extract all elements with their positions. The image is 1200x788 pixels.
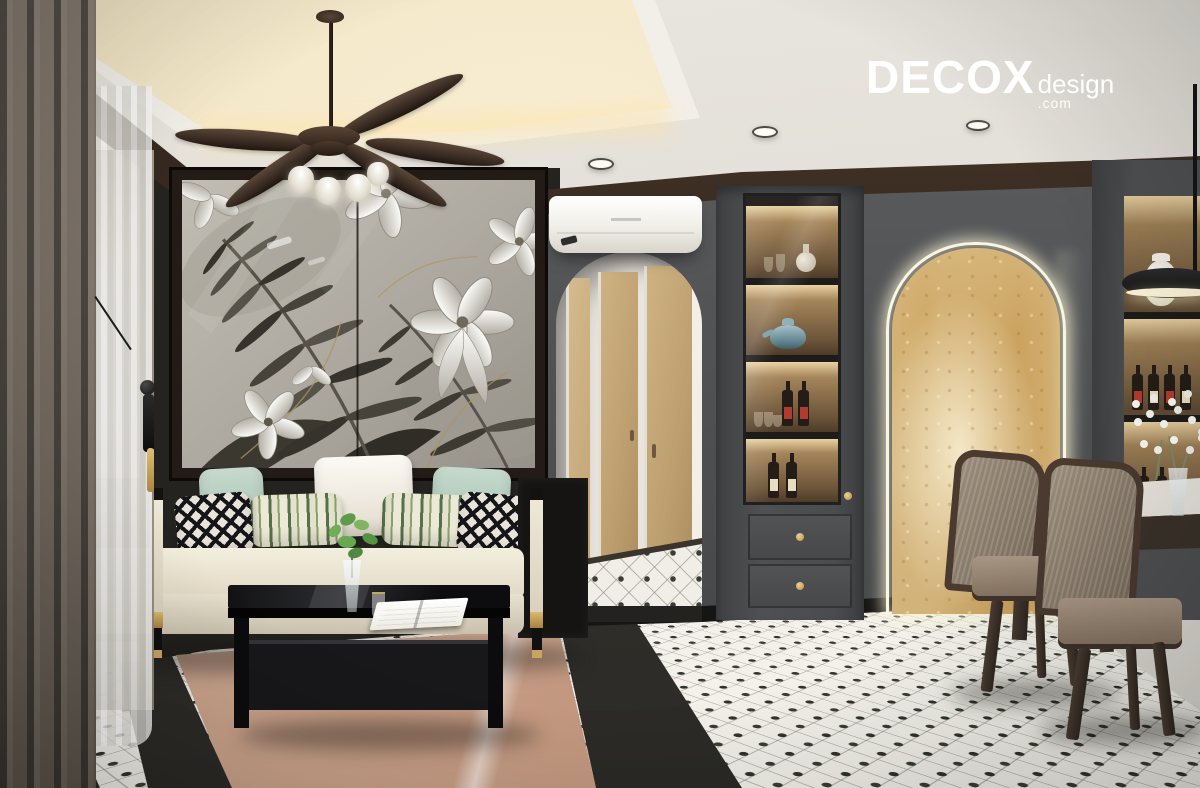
glass-reflection — [746, 196, 838, 502]
coffee-table-edge — [228, 608, 510, 618]
fan-canopy — [316, 10, 344, 23]
logo-design-text: design — [1038, 73, 1115, 95]
decox-watermark: DECOX design .com — [866, 54, 1114, 111]
sofa-gold-ferrule — [530, 612, 543, 628]
brand-logo-text: DECOX — [866, 54, 1035, 100]
fan-lamp-shade — [367, 162, 389, 186]
fan-downrod — [329, 20, 333, 132]
coffee-table-shelf — [249, 640, 488, 710]
dining-chair-seat — [1058, 598, 1182, 644]
plant-leaf — [361, 531, 380, 548]
cabinet-drawer — [748, 514, 852, 560]
door-handle-icon — [630, 430, 634, 441]
white-blooms — [1140, 440, 1148, 448]
fan-lamp-shade — [288, 166, 314, 194]
cabinet-drawer — [748, 564, 852, 608]
ac-vent-seam — [557, 232, 694, 234]
blackout-curtain — [0, 0, 96, 788]
mural-art — [182, 180, 535, 468]
flower-stem — [1155, 440, 1163, 480]
logo-com-text: .com — [1038, 95, 1115, 111]
chair-shadow — [1040, 716, 1200, 744]
room-photo: DECOX design .com — [0, 0, 1200, 788]
downlight-icon — [966, 120, 990, 131]
coffee-table-leg — [488, 618, 503, 728]
pendant-stem — [1193, 84, 1197, 272]
downlight-icon — [752, 126, 778, 138]
dining-chair-back — [1035, 457, 1146, 622]
fan-lamp-shade — [315, 177, 341, 205]
ac-vent-flap — [560, 235, 577, 246]
shelf — [1124, 312, 1200, 319]
plant-leaf — [347, 547, 364, 560]
sofa-leg-tip — [532, 650, 542, 658]
brand-logo-suffix: design .com — [1038, 73, 1115, 111]
tassel-black-icon — [143, 394, 154, 452]
cabinet-knob-icon — [844, 492, 852, 500]
downlight-icon — [588, 158, 614, 170]
coffee-table-leg — [234, 618, 249, 728]
hallway-door — [598, 272, 638, 592]
door-handle-icon — [652, 444, 656, 458]
plant-leaf — [337, 535, 356, 549]
white-blooms — [1132, 400, 1140, 408]
drawer-knob-icon — [796, 533, 804, 541]
sofa-arm-post — [530, 488, 543, 614]
sofa-arm-cap — [530, 488, 543, 500]
floral-mural-panel — [172, 170, 545, 478]
air-conditioner — [549, 196, 702, 253]
glass-reflection — [306, 585, 369, 609]
white-blooms — [1134, 418, 1142, 426]
tassel-ball-icon — [140, 380, 155, 395]
plant-leaf — [353, 518, 370, 532]
ac-brand-mark — [611, 218, 641, 221]
sofa-arm — [518, 478, 588, 638]
fan-light-base — [310, 141, 348, 156]
drawer-knob-icon — [796, 582, 804, 590]
chair-shadow — [950, 680, 1120, 706]
small-glass — [372, 592, 385, 618]
tassel-gold-icon — [147, 448, 154, 492]
